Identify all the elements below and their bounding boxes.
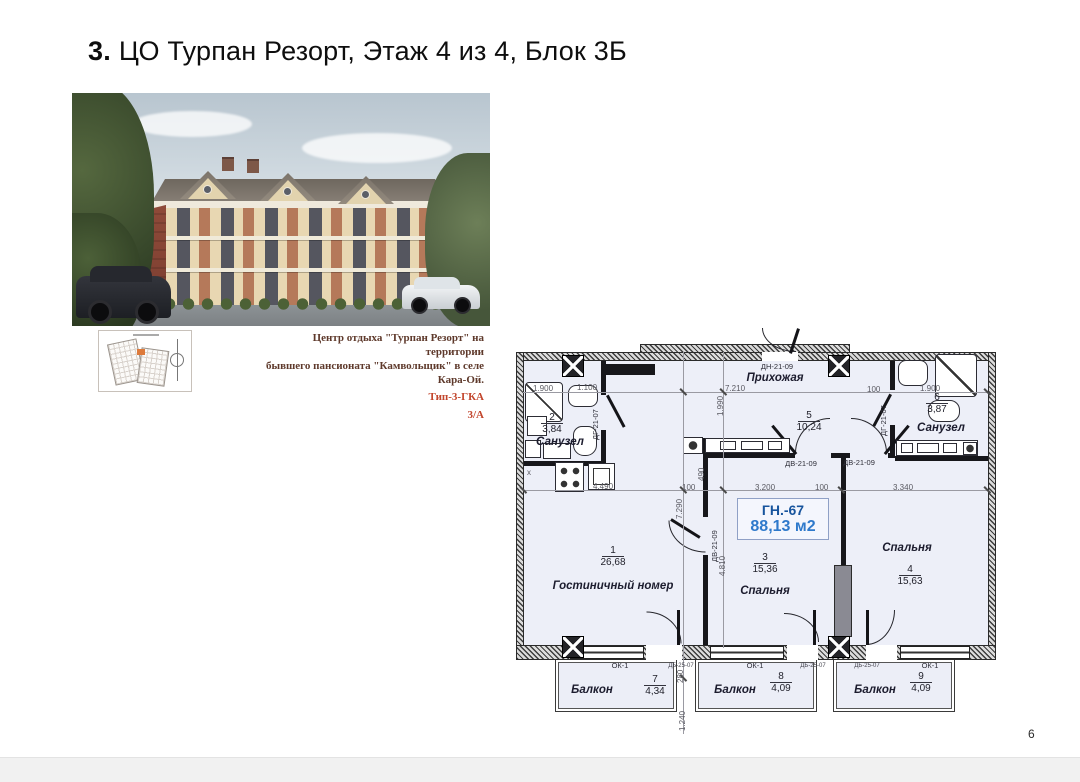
window-ok1	[900, 646, 970, 659]
page-number: 6	[1028, 727, 1035, 741]
structural-column	[828, 355, 850, 377]
highlighted-unit-marker	[137, 349, 145, 355]
white-car	[402, 285, 480, 309]
slide-page: 3.ЦО Турпан Резорт, Этаж 4 из 4, Блок 3Б	[0, 0, 1080, 782]
structural-column	[828, 636, 850, 658]
door-label-room1: ДВ-21-09	[710, 530, 719, 562]
unit-code: ГН.-67	[738, 502, 828, 518]
unit-label-box: ГН.-67 88,13 м2	[737, 498, 829, 540]
footer-bar	[0, 757, 1080, 782]
door-label-bath6: ДГ-21-07	[879, 405, 888, 436]
door-label-entry: ДН-21-09	[747, 362, 807, 371]
stove	[555, 462, 584, 492]
roof-fascia	[142, 201, 457, 208]
dim-3340: 3.340	[893, 483, 913, 492]
balcony7-name: Балкон	[558, 684, 626, 696]
kitchen-mark: x	[527, 468, 531, 477]
door-label-room3: ДВ-21-09	[771, 459, 831, 468]
balcony-door-opening	[866, 645, 897, 660]
caption-type: Тип-3-ГКА	[254, 390, 484, 405]
window-label-ok1-b: ОК-1	[730, 661, 780, 670]
north-arrow-circle	[170, 353, 184, 367]
dim-3200: 3.200	[755, 483, 775, 492]
bath6-counter-box	[917, 443, 939, 453]
round-gable-window	[203, 185, 212, 194]
photo-caption: Центр отдыха "Турпан Резорт" на территор…	[254, 331, 484, 423]
outer-wall-right	[988, 352, 996, 648]
shaft	[834, 565, 852, 637]
room5-num: 5 10,24	[787, 410, 831, 433]
balcony7-door-leaf	[677, 610, 680, 645]
room1-name: Гостиничный номер	[548, 580, 678, 592]
balcony9-door-leaf	[866, 610, 869, 645]
room6-name: Санузел	[901, 422, 981, 434]
entry-door-opening	[762, 352, 798, 361]
floor-plan: x 1.900 1.100 7.210 100 1.	[515, 340, 997, 740]
front-facade	[166, 208, 428, 305]
structural-column	[562, 355, 584, 377]
balcony-rail-band	[166, 268, 428, 272]
room1-room3-wall	[703, 555, 708, 645]
caption-block: 3/А	[254, 408, 484, 423]
round-gable-window	[361, 190, 370, 199]
dim-100-b: 100	[815, 483, 828, 492]
door-label-balc9: ДБ-25-07	[847, 663, 887, 669]
hall-counter-box	[768, 441, 782, 450]
caption-line1: Центр отдыха "Турпан Резорт" на территор…	[254, 331, 484, 359]
window-ok1	[710, 646, 784, 659]
unit-area: 88,13 м2	[738, 518, 828, 536]
dim-100-a: 100	[682, 483, 695, 492]
room3-name: Спальня	[730, 585, 800, 597]
hall-counter-sink	[683, 437, 703, 454]
hall-wall-bottom	[703, 453, 795, 458]
dim-7210: 7.210	[725, 384, 745, 393]
dim-1100: 1.100	[577, 383, 597, 392]
room3-num: 3 15,36	[740, 552, 790, 575]
sink-6	[898, 360, 928, 386]
room2-num: 2 3,84	[530, 412, 574, 435]
bath6-wall-bottom	[895, 456, 988, 461]
caption-line2: бывшего пансионата "Камвольщик" в селе К…	[254, 359, 484, 387]
hall-solid-wall	[605, 364, 655, 375]
window-label-ok1-c: ОК-1	[905, 661, 955, 670]
bath6-counter-box	[943, 443, 957, 453]
dim-7290: 7.290	[675, 499, 684, 519]
dim-1240: 1.240	[678, 711, 687, 731]
chimney	[247, 159, 259, 173]
door-label-balc8: ДБ-25-07	[793, 663, 833, 669]
room1-num: 1 26,68	[588, 545, 638, 568]
door-label-balc7: ДБ-25-07	[661, 663, 701, 669]
dim-1990: 1.990	[716, 396, 725, 416]
room2-name: Санузел	[520, 436, 600, 448]
outer-wall-left	[516, 352, 524, 648]
cloud	[132, 111, 252, 137]
room4-name: Спальня	[867, 542, 947, 554]
room5-name: Прихожая	[730, 372, 820, 384]
door-label-room4: ДВ-21-09	[829, 458, 889, 467]
dim-4490: 4.490	[593, 482, 613, 491]
dim-1900-left: 1.900	[533, 384, 553, 393]
room4-num: 4 15,63	[885, 564, 935, 587]
balcony9-name: Балкон	[841, 684, 909, 696]
cloud	[302, 133, 452, 163]
window-label-ok1-a: ОК-1	[595, 661, 645, 670]
outer-wall-top	[516, 352, 996, 361]
title-number: 3.	[88, 36, 111, 66]
bath6-counter-box	[901, 443, 913, 453]
balcony-rail-band	[166, 236, 428, 240]
bath6-wall	[890, 361, 895, 390]
round-gable-window	[283, 187, 292, 196]
balcony8-door-leaf	[813, 610, 816, 645]
bush-row	[160, 298, 440, 313]
room6-num: 6 3,87	[915, 392, 959, 415]
thumb-caption-line	[133, 334, 159, 336]
dark-suv	[76, 276, 171, 318]
balcony-door-opening	[646, 645, 682, 660]
shower-6	[935, 354, 977, 397]
balcony-door-opening	[787, 645, 818, 660]
dim-490: 490	[697, 468, 706, 481]
balcony8-name: Балкон	[701, 684, 769, 696]
dim-4810: 4.810	[718, 556, 727, 576]
chimney	[222, 157, 234, 171]
dim-100-top: 100	[867, 385, 880, 394]
building-rendering-image	[72, 93, 490, 326]
title-text: ЦО Турпан Резорт, Этаж 4 из 4, Блок 3Б	[119, 36, 627, 66]
site-plan-thumbnail	[98, 330, 192, 392]
structural-column	[562, 636, 584, 658]
bath6-counter-sink	[963, 442, 977, 455]
balcony7-num: 7 4,34	[631, 674, 679, 697]
page-title: 3.ЦО Турпан Резорт, Этаж 4 из 4, Блок 3Б	[88, 36, 627, 67]
hall-counter-box	[741, 441, 763, 450]
